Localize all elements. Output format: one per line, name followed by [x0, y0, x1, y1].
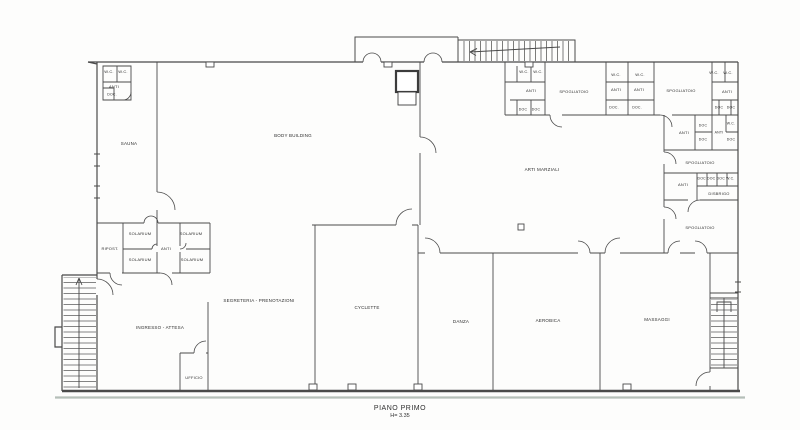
floor-plan-page: W.C.W.C.ANTIDOC.SAUNABODY BUILDINGRIPOST… [0, 0, 800, 430]
floor-height: H= 3.35 [374, 413, 426, 419]
interior-walls [94, 62, 741, 391]
outer-walls [55, 62, 740, 391]
pillars [206, 62, 631, 390]
stairs-bottom-right [710, 298, 738, 368]
drawing-title-block: PIANO PRIMO H= 3.35 [374, 405, 426, 419]
elevator [396, 71, 418, 105]
floor-plan-drawing [0, 0, 800, 430]
floor-title: PIANO PRIMO [374, 405, 426, 412]
stairs-bottom-left [64, 277, 97, 389]
entrance-vestibule [355, 37, 575, 62]
